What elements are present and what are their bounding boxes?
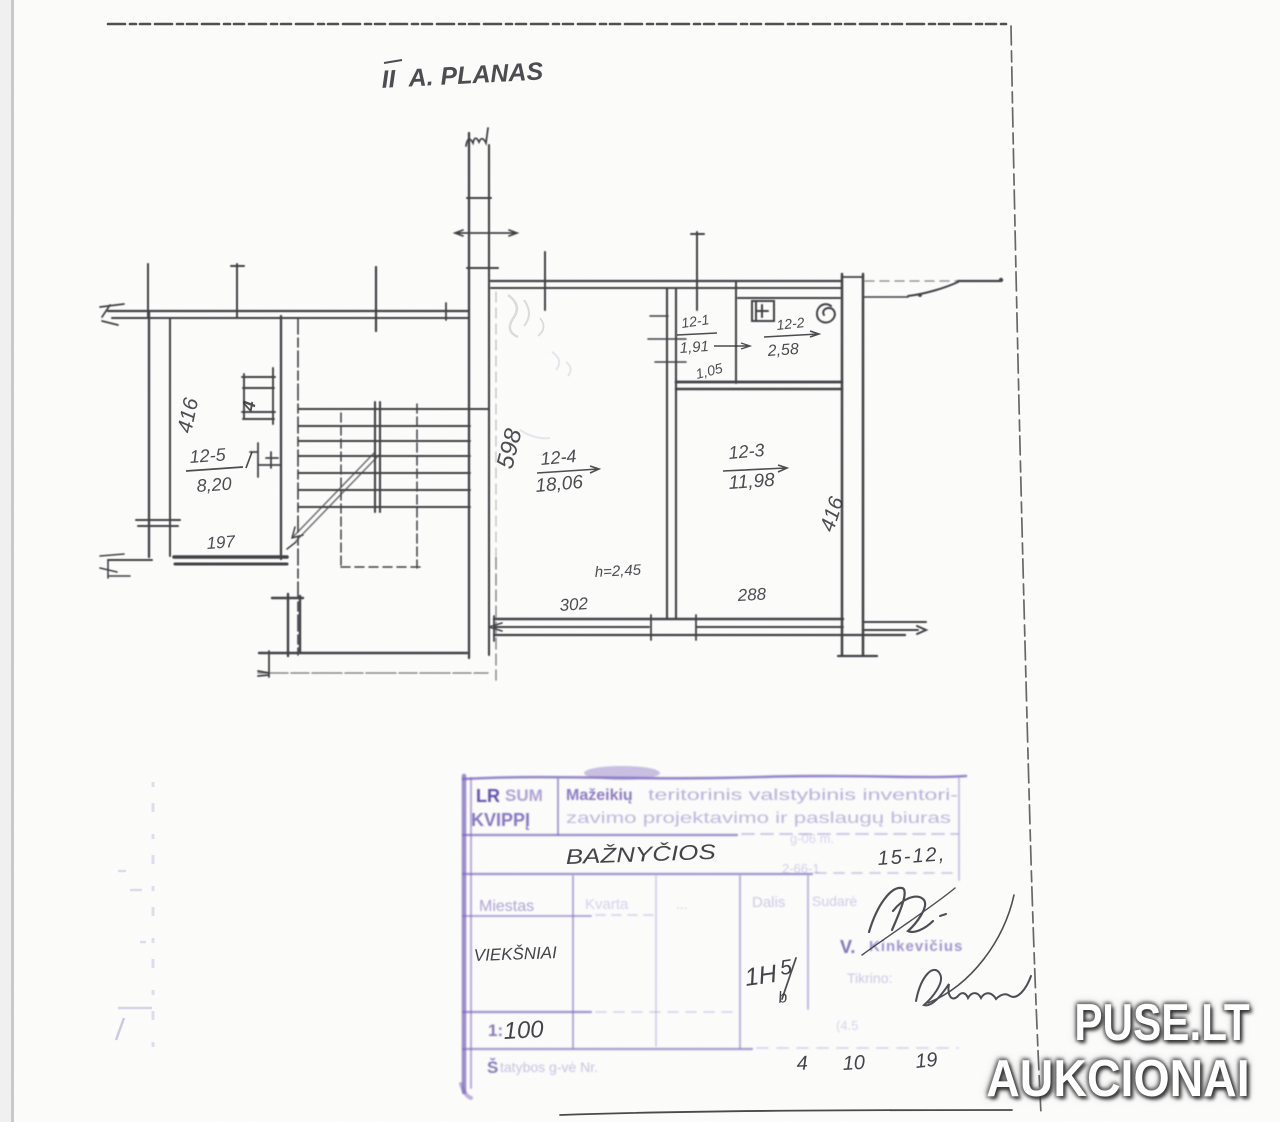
svg-text:1:: 1: — [488, 1021, 503, 1040]
svg-text:zavimo projektavimo ir paslaug: zavimo projektavimo ir paslaugų biuras — [566, 810, 951, 827]
svg-text:VIEKŠNIAI: VIEKŠNIAI — [473, 943, 557, 965]
svg-text:1,91: 1,91 — [679, 338, 709, 357]
svg-text:SUM: SUM — [505, 786, 543, 805]
svg-text:12-2: 12-2 — [776, 314, 806, 333]
svg-text:h=2,45: h=2,45 — [594, 562, 642, 581]
svg-text:tatybos g-vė Nr.: tatybos g-vė Nr. — [500, 1059, 598, 1075]
svg-text:4: 4 — [796, 1052, 808, 1075]
svg-text:V.: V. — [840, 937, 855, 957]
svg-text:LR: LR — [476, 786, 500, 806]
svg-text:197: 197 — [206, 532, 236, 553]
svg-text:Š: Š — [487, 1058, 498, 1077]
svg-text:11,98: 11,98 — [728, 470, 776, 494]
svg-text:12-5: 12-5 — [189, 444, 227, 467]
svg-text:Sudarė: Sudarė — [812, 893, 857, 909]
svg-text:Mažeikių: Mažeikių — [566, 787, 633, 804]
svg-text:12-4: 12-4 — [540, 446, 578, 469]
svg-text:302: 302 — [559, 594, 589, 615]
svg-text:19: 19 — [914, 1049, 938, 1073]
svg-text:12-3: 12-3 — [728, 440, 766, 463]
svg-text:288: 288 — [736, 585, 767, 606]
svg-text:Tikrino:: Tikrino: — [847, 970, 892, 986]
svg-text:g-06 m.: g-06 m. — [790, 831, 834, 846]
svg-text:10: 10 — [842, 1052, 865, 1075]
svg-text:Miestas: Miestas — [479, 898, 534, 915]
svg-text:(4.5: (4.5 — [836, 1018, 858, 1033]
svg-text:teritorinis valstybinis invent: teritorinis valstybinis inventori- — [648, 787, 958, 804]
svg-text:2-66-1: 2-66-1 — [782, 861, 820, 876]
svg-text:8,20: 8,20 — [196, 474, 232, 496]
svg-text:Dalis: Dalis — [752, 894, 785, 911]
svg-text:18,06: 18,06 — [535, 472, 585, 497]
svg-text:KVIPPĮ: KVIPPĮ — [471, 810, 530, 830]
svg-text:...: ... — [676, 896, 688, 912]
svg-text:100: 100 — [503, 1016, 545, 1045]
svg-text:1H: 1H — [743, 960, 779, 992]
svg-text:2,58: 2,58 — [766, 341, 799, 360]
svg-text:Kvarta: Kvarta — [585, 896, 629, 913]
